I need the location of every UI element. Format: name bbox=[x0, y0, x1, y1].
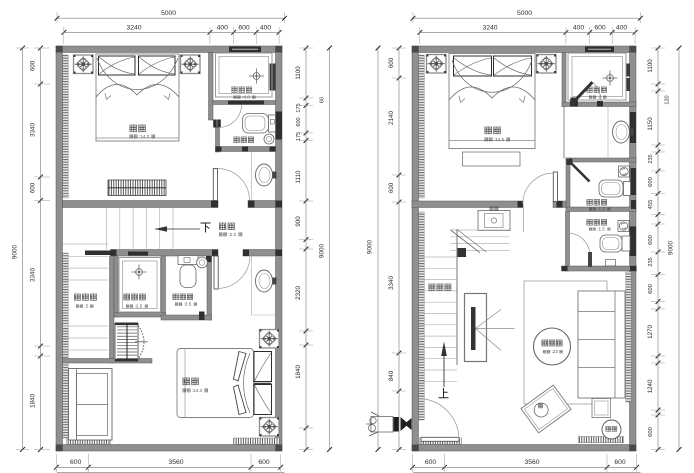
svg-text:600: 600 bbox=[70, 459, 82, 466]
svg-text:235: 235 bbox=[648, 154, 654, 163]
svg-text:600: 600 bbox=[648, 284, 654, 294]
svg-text::3.5: :3.5 bbox=[184, 302, 192, 307]
svg-text:120: 120 bbox=[665, 95, 671, 104]
svg-text:600: 600 bbox=[594, 24, 606, 31]
svg-text:600: 600 bbox=[648, 235, 654, 245]
svg-text:600: 600 bbox=[388, 182, 395, 193]
svg-text:455: 455 bbox=[648, 200, 654, 210]
svg-text:9000: 9000 bbox=[367, 239, 374, 254]
svg-text:9000: 9000 bbox=[319, 243, 326, 258]
svg-text:600: 600 bbox=[238, 24, 250, 31]
svg-text:600: 600 bbox=[258, 459, 270, 466]
svg-text:400: 400 bbox=[217, 24, 229, 31]
svg-text:2140: 2140 bbox=[388, 111, 395, 125]
svg-text::4.8: :4.8 bbox=[242, 95, 250, 100]
svg-text:5000: 5000 bbox=[517, 10, 532, 17]
svg-text:1100: 1100 bbox=[647, 59, 654, 73]
svg-text::1.5: :1.5 bbox=[597, 227, 605, 232]
svg-text::2.2: :2.2 bbox=[228, 232, 236, 237]
svg-text:840: 840 bbox=[388, 370, 395, 381]
svg-text:600: 600 bbox=[30, 60, 37, 71]
svg-text::14.3: :14.3 bbox=[139, 134, 150, 139]
svg-text:3340: 3340 bbox=[388, 276, 395, 290]
svg-text:5000: 5000 bbox=[161, 10, 176, 17]
svg-text::2: :2 bbox=[598, 95, 602, 100]
svg-text::23: :23 bbox=[552, 349, 559, 354]
svg-text:2320: 2320 bbox=[295, 286, 302, 300]
svg-text:60: 60 bbox=[320, 97, 326, 103]
svg-text:175: 175 bbox=[296, 132, 302, 141]
svg-text::1.9: :1.9 bbox=[597, 207, 605, 212]
svg-text:1100: 1100 bbox=[295, 66, 302, 80]
svg-text:9000: 9000 bbox=[12, 244, 19, 259]
svg-text:600: 600 bbox=[648, 427, 654, 437]
svg-text::12.6: :12.6 bbox=[494, 137, 505, 142]
svg-text:3240: 3240 bbox=[126, 24, 141, 31]
svg-text:235: 235 bbox=[648, 257, 654, 266]
svg-text:600: 600 bbox=[388, 57, 395, 68]
svg-text:600: 600 bbox=[614, 459, 626, 466]
svg-text:1150: 1150 bbox=[647, 117, 654, 131]
svg-text:3560: 3560 bbox=[168, 459, 183, 466]
svg-text:600: 600 bbox=[30, 182, 37, 193]
svg-text:1270: 1270 bbox=[647, 325, 654, 339]
svg-text:9000: 9000 bbox=[668, 240, 675, 255]
svg-text:3340: 3340 bbox=[30, 123, 37, 137]
svg-text::2.5: :2.5 bbox=[135, 304, 143, 309]
svg-text:3340: 3340 bbox=[30, 268, 37, 282]
svg-text::14.3: :14.3 bbox=[192, 388, 203, 393]
svg-text:900: 900 bbox=[295, 216, 302, 227]
svg-text:3560: 3560 bbox=[524, 459, 539, 466]
svg-text:600: 600 bbox=[648, 177, 654, 187]
svg-text:3240: 3240 bbox=[482, 24, 497, 31]
svg-text:400: 400 bbox=[573, 24, 585, 31]
svg-text:1240: 1240 bbox=[647, 379, 654, 393]
svg-text:400: 400 bbox=[616, 24, 628, 31]
svg-text:600: 600 bbox=[425, 459, 437, 466]
svg-text:175: 175 bbox=[296, 103, 302, 112]
svg-text:1110: 1110 bbox=[295, 170, 302, 183]
svg-text:1840: 1840 bbox=[30, 394, 37, 408]
svg-text:1840: 1840 bbox=[295, 365, 302, 379]
svg-text::5: :5 bbox=[85, 304, 89, 309]
svg-text:400: 400 bbox=[260, 24, 272, 31]
svg-text:600: 600 bbox=[296, 117, 302, 126]
